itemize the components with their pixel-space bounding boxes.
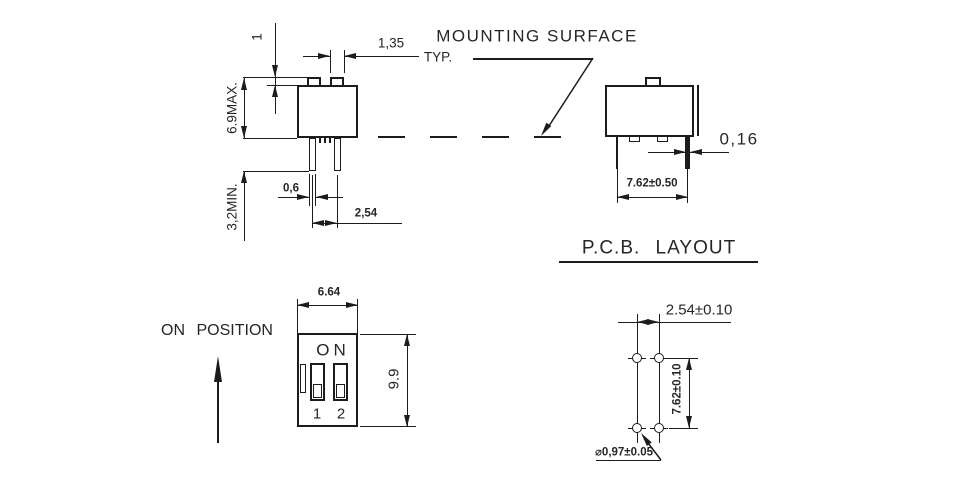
technical-drawing-canvas: 1 1,35 TYP. 6.9MAX. 3,2MIN. 0,6 2,54 MOU… [0, 0, 960, 488]
hole-diameter-leader [648, 443, 661, 460]
hole-diameter-leader-arrowhead [641, 433, 652, 446]
mounting-surface-leader [547, 58, 593, 129]
leader-lines-layer [0, 0, 960, 488]
